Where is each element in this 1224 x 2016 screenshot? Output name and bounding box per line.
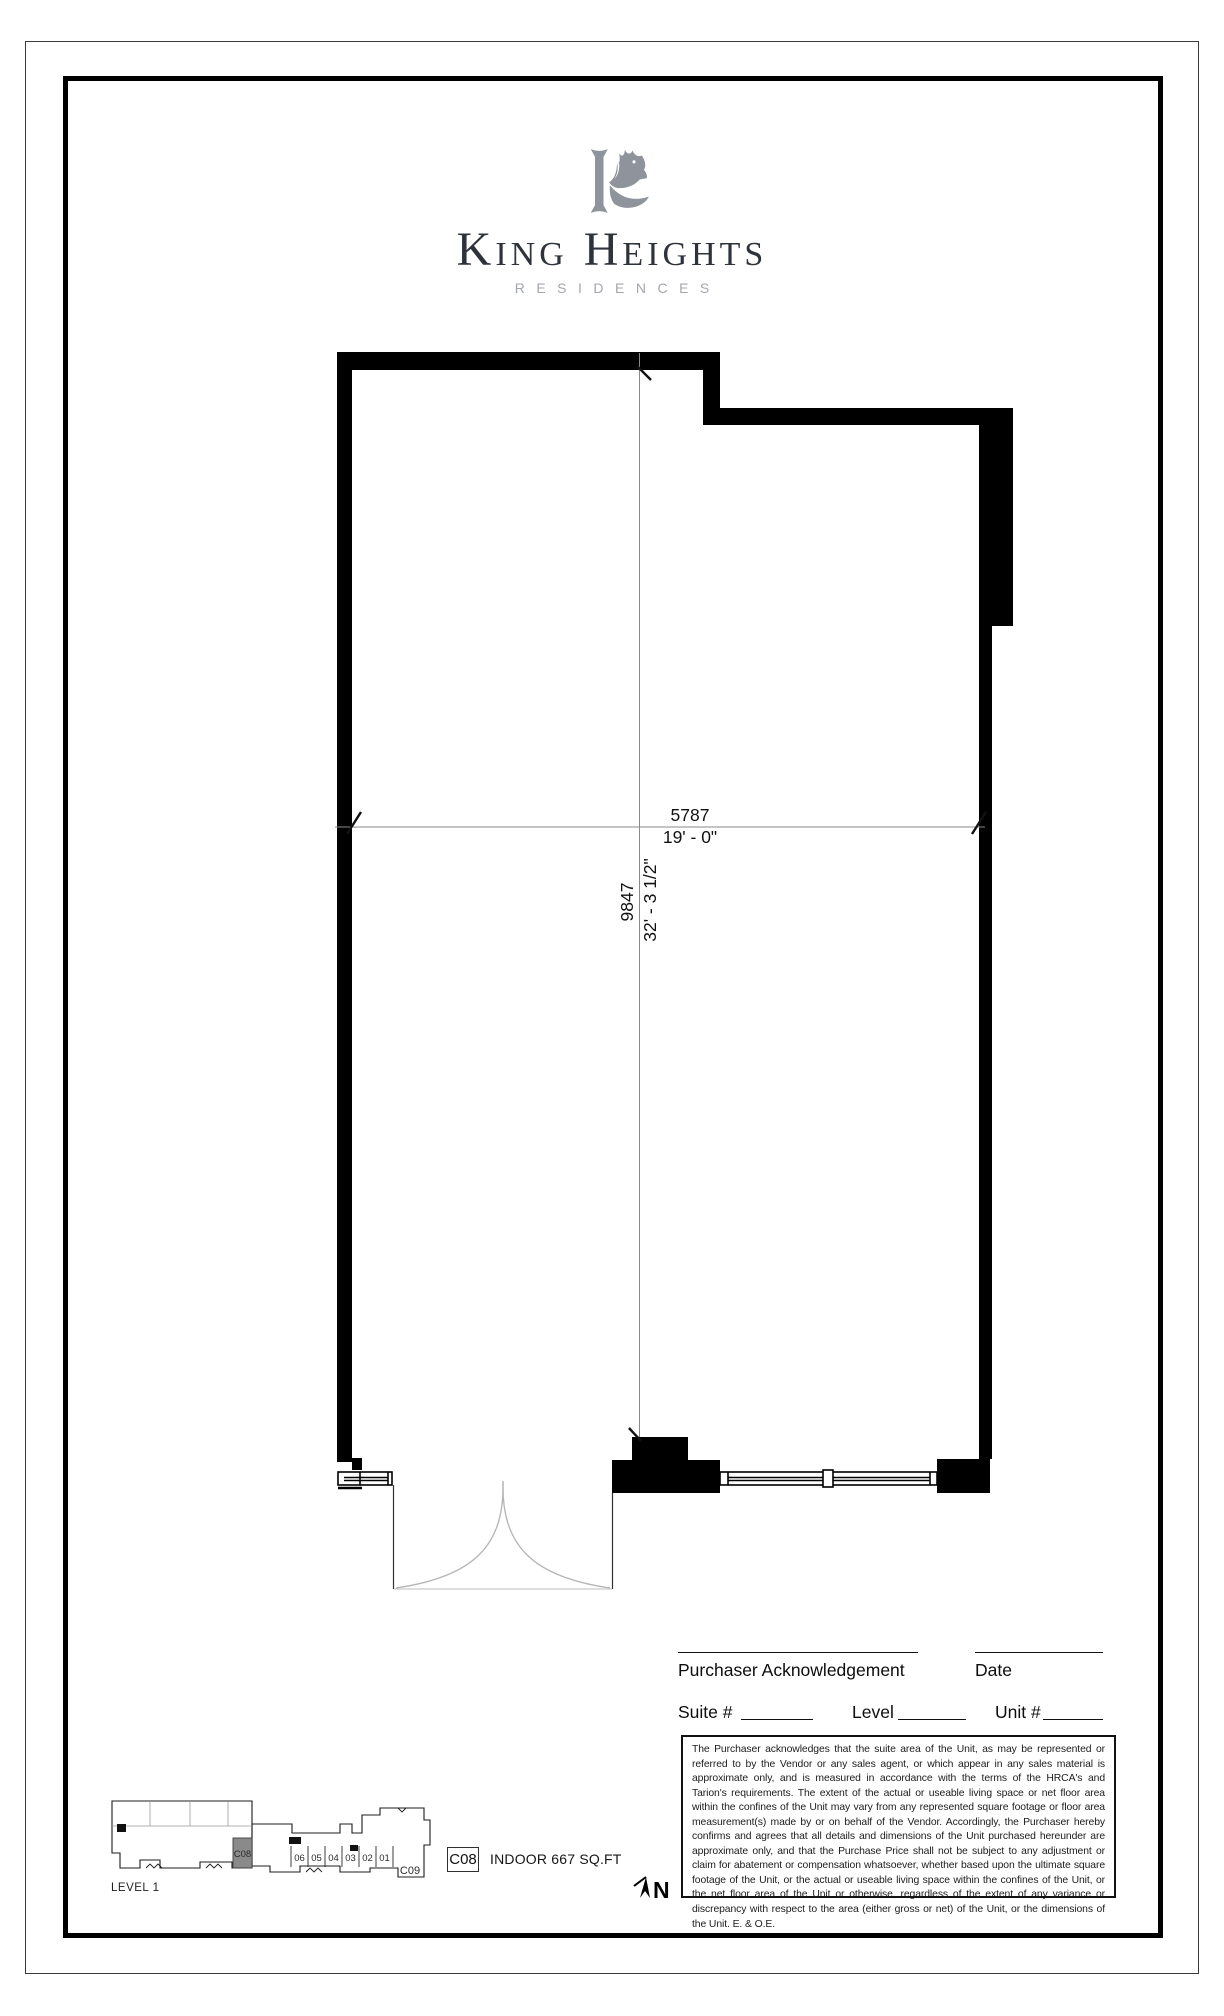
suite-number-line bbox=[741, 1719, 813, 1720]
horizontal-dimension-mm: 5787 bbox=[671, 805, 710, 825]
keyplan-unit-number: 04 bbox=[328, 1853, 339, 1864]
brand-name: King Heights bbox=[0, 226, 1224, 274]
wall-bottom-right-block bbox=[937, 1459, 990, 1493]
unit-floorplan: 5787 19' - 0" 9847 32' - 3 1/2" bbox=[330, 345, 1020, 1600]
keyplan-unit-number: 05 bbox=[311, 1853, 322, 1864]
date-signature-line bbox=[975, 1652, 1103, 1653]
building-key-plan: C08 06 05 04 03 02 01 C09 bbox=[85, 1793, 435, 1893]
level-field-label: Level bbox=[852, 1702, 894, 1723]
keyplan-adjacent-unit-label: C09 bbox=[400, 1865, 420, 1877]
purchaser-signature-line bbox=[678, 1652, 918, 1653]
unit-code-box: C08 bbox=[447, 1847, 479, 1872]
keyplan-unit-number: 02 bbox=[362, 1853, 373, 1864]
window-bottom-left bbox=[338, 1472, 392, 1488]
brand-tagline: RESIDENCES bbox=[0, 281, 1224, 295]
window-bottom-right bbox=[720, 1470, 937, 1487]
wall-right-lower bbox=[979, 626, 992, 1459]
unit-number-line bbox=[1043, 1719, 1103, 1720]
suite-number-label: Suite # bbox=[678, 1702, 732, 1723]
keyplan-highlight-label: C08 bbox=[234, 1849, 251, 1860]
keyplan-unit-dividers bbox=[291, 1846, 393, 1867]
wall-top-left bbox=[337, 352, 720, 370]
wall-top-right bbox=[703, 408, 1013, 425]
wall-left bbox=[337, 352, 352, 1462]
level-field-line bbox=[898, 1719, 966, 1720]
horse-head-k-monogram-icon bbox=[578, 144, 656, 218]
dimension-lines bbox=[335, 353, 986, 1441]
keyplan-unit-number: 06 bbox=[294, 1853, 305, 1864]
unit-code: C08 bbox=[449, 1851, 477, 1868]
double-door-swing bbox=[394, 1481, 613, 1589]
unit-area-label: INDOOR 667 SQ.FT bbox=[490, 1851, 622, 1867]
keyplan-level-label: LEVEL 1 bbox=[111, 1882, 159, 1894]
wall-right-upper bbox=[979, 408, 1013, 626]
vertical-dimension-imperial: 32' - 3 1/2" bbox=[640, 858, 660, 942]
keyplan-unit-number: 03 bbox=[345, 1853, 356, 1864]
north-letter: N bbox=[653, 1877, 670, 1900]
date-label: Date bbox=[975, 1660, 1012, 1681]
wall-bottom-left-step bbox=[352, 1458, 362, 1470]
keyplan-unit-number: 01 bbox=[379, 1853, 390, 1864]
unit-number-label: Unit # bbox=[995, 1702, 1041, 1723]
keyplan-outline bbox=[112, 1801, 430, 1877]
disclaimer-text: The Purchaser acknowledges that the suit… bbox=[692, 1743, 1105, 1932]
purchaser-acknowledgement-label: Purchaser Acknowledgement bbox=[678, 1660, 905, 1681]
horizontal-dimension-imperial: 19' - 0" bbox=[663, 827, 717, 847]
north-arrow-icon: N bbox=[630, 1874, 674, 1900]
wall-outline bbox=[337, 352, 1013, 1493]
floorplan-document-page: King Heights RESIDENCES bbox=[0, 0, 1224, 2016]
wall-bottom-center-block bbox=[612, 1460, 720, 1493]
vertical-dimension-mm: 9847 bbox=[617, 883, 637, 922]
disclaimer-box: The Purchaser acknowledges that the suit… bbox=[681, 1735, 1116, 1898]
